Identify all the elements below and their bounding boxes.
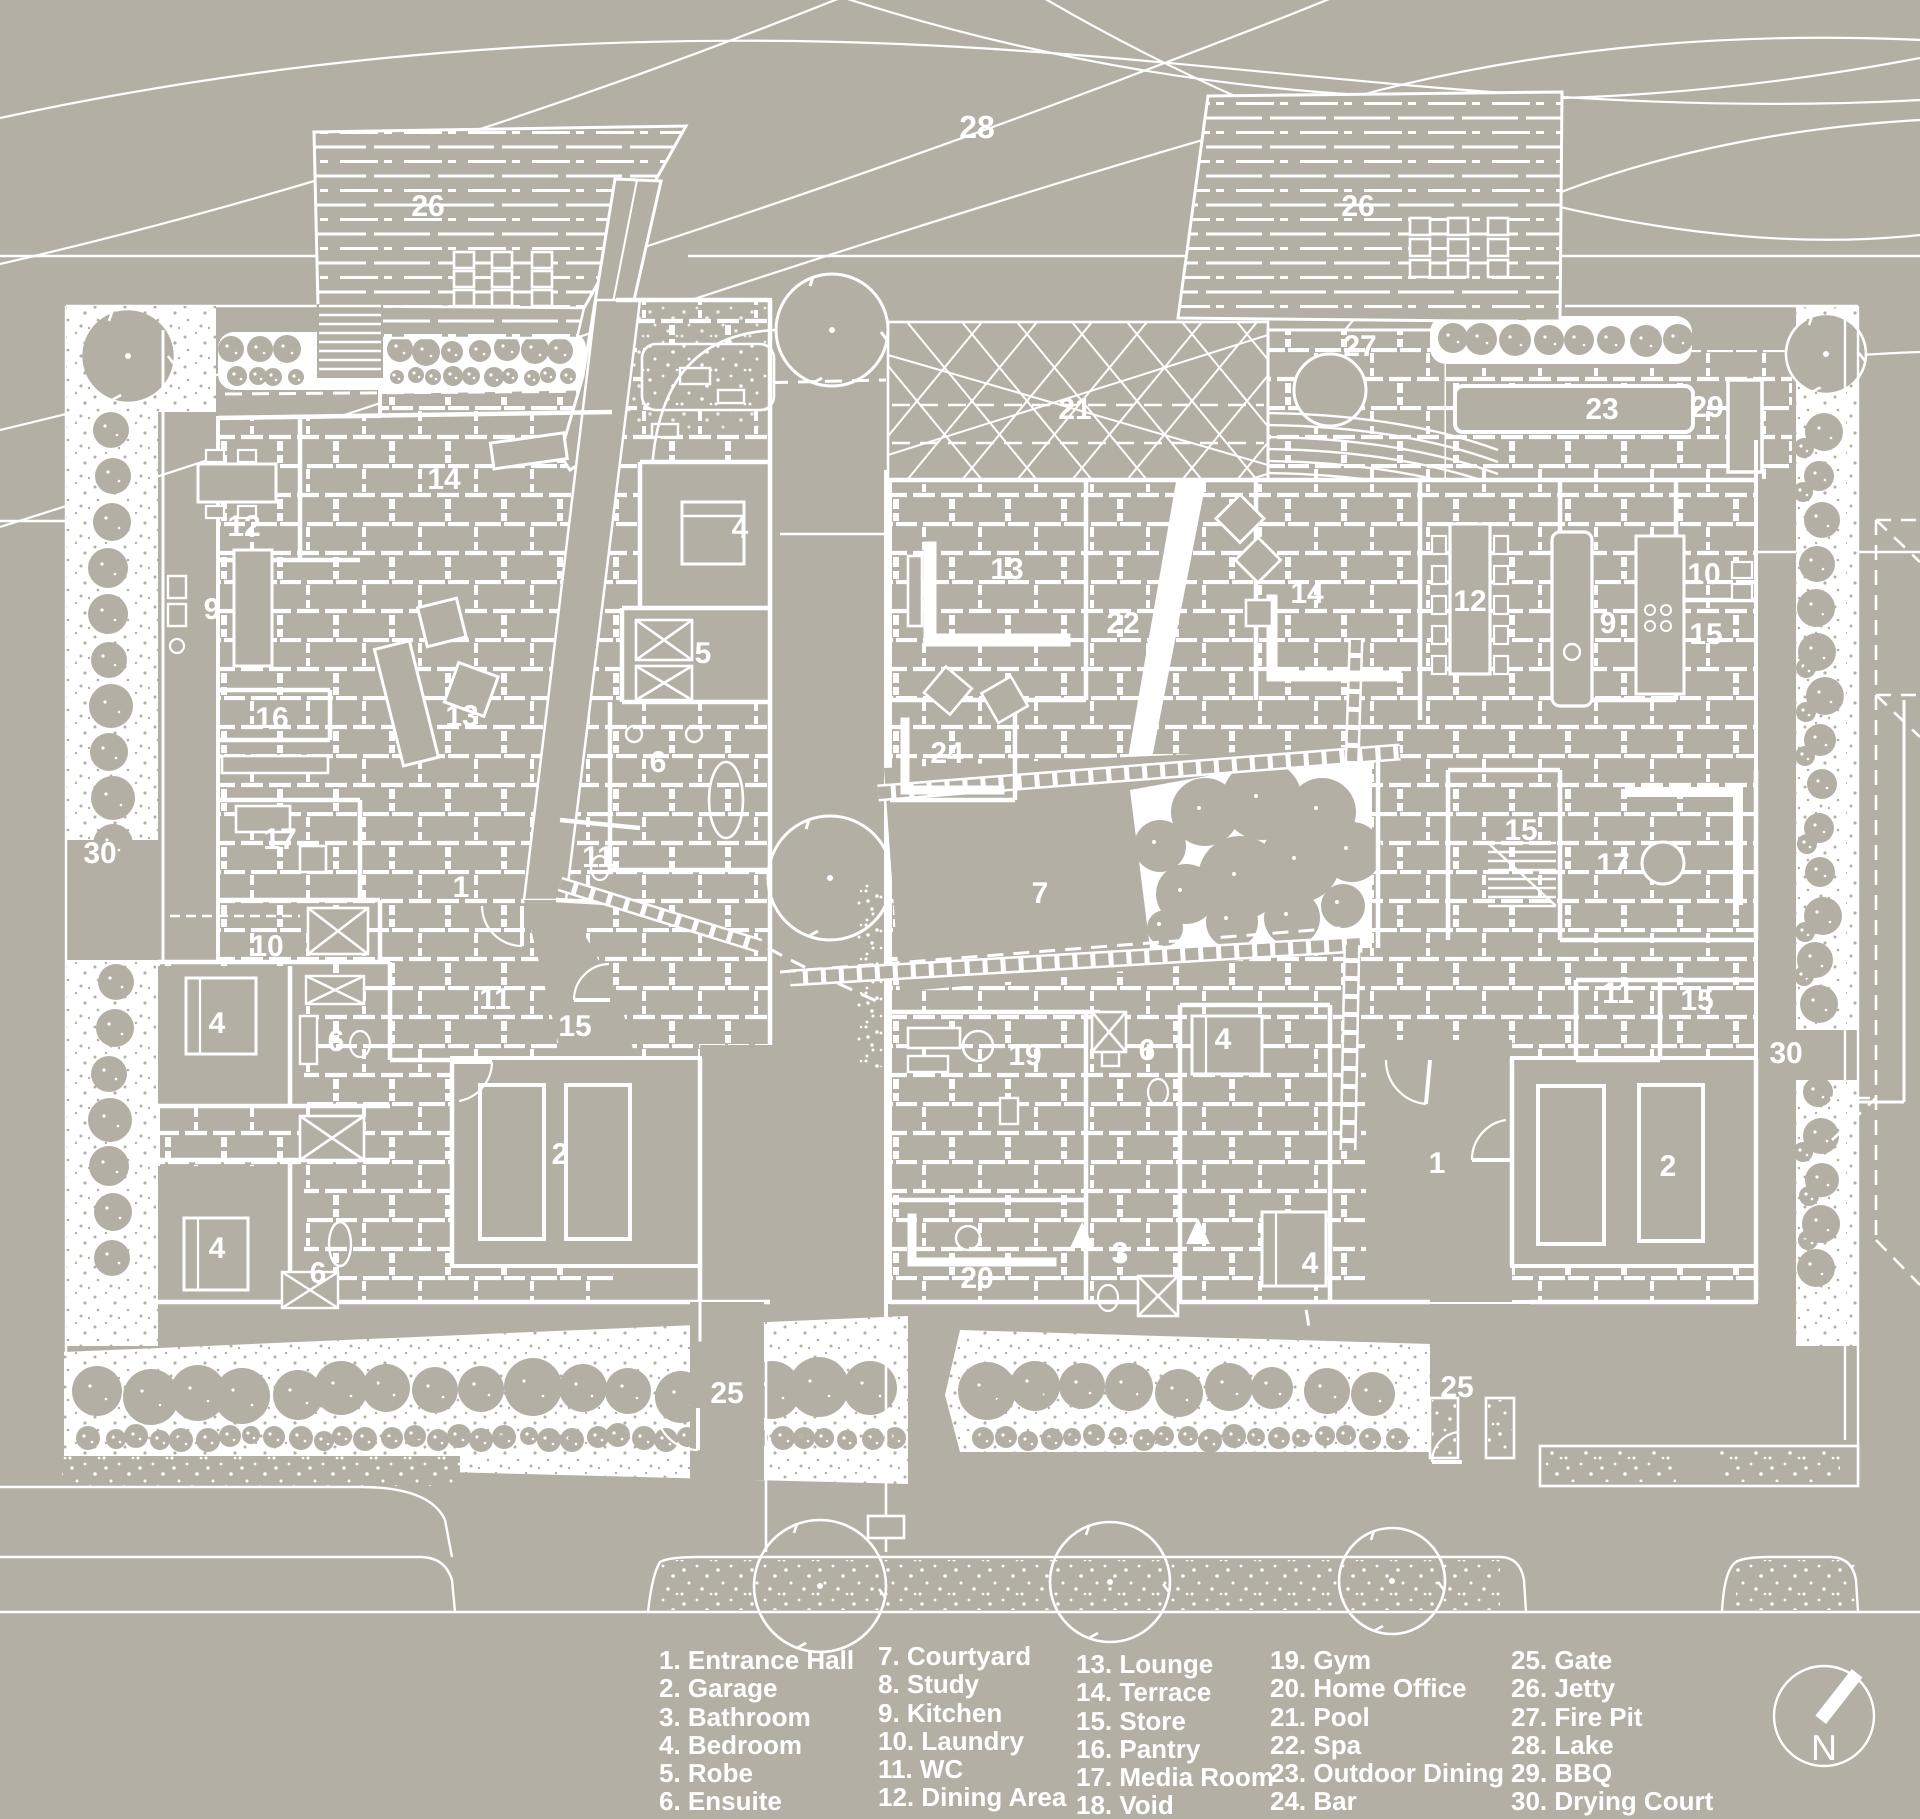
- svg-text:29. BBQ: 29. BBQ: [1511, 1758, 1612, 1788]
- svg-text:11: 11: [1602, 977, 1634, 1010]
- svg-text:26: 26: [1341, 190, 1374, 223]
- svg-text:6: 6: [310, 1257, 327, 1290]
- svg-text:17. Media Room: 17. Media Room: [1076, 1762, 1274, 1792]
- svg-text:23: 23: [1585, 393, 1618, 426]
- svg-text:15: 15: [1504, 814, 1537, 847]
- svg-text:27: 27: [1343, 330, 1376, 363]
- svg-text:27. Fire Pit: 27. Fire Pit: [1511, 1702, 1643, 1732]
- svg-text:4: 4: [1215, 1023, 1232, 1056]
- svg-text:25. Gate: 25. Gate: [1511, 1645, 1612, 1675]
- svg-text:3. Bathroom: 3. Bathroom: [659, 1702, 811, 1732]
- svg-text:12: 12: [227, 510, 260, 543]
- svg-text:7. Courtyard: 7. Courtyard: [878, 1641, 1031, 1671]
- svg-text:20. Home Office: 20. Home Office: [1270, 1673, 1467, 1703]
- svg-text:9: 9: [1600, 607, 1617, 640]
- svg-text:16. Pantry: 16. Pantry: [1076, 1734, 1201, 1764]
- svg-text:2: 2: [1660, 1150, 1677, 1183]
- svg-text:4: 4: [1302, 1247, 1319, 1280]
- svg-text:13: 13: [445, 700, 478, 733]
- svg-text:28: 28: [959, 109, 995, 145]
- svg-text:11: 11: [582, 841, 614, 874]
- svg-text:22. Spa: 22. Spa: [1270, 1730, 1362, 1760]
- svg-text:12: 12: [1453, 585, 1486, 618]
- svg-text:4: 4: [209, 1232, 226, 1265]
- svg-text:1: 1: [1429, 1147, 1446, 1180]
- svg-text:15. Store: 15. Store: [1076, 1706, 1186, 1736]
- svg-text:4: 4: [732, 512, 749, 545]
- svg-text:1. Entrance Hall: 1. Entrance Hall: [659, 1645, 854, 1675]
- svg-text:6: 6: [650, 746, 667, 779]
- svg-text:13. Lounge: 13. Lounge: [1076, 1649, 1213, 1679]
- svg-text:15: 15: [1680, 984, 1713, 1017]
- svg-text:28. Lake: 28. Lake: [1511, 1730, 1614, 1760]
- svg-text:26. Jetty: 26. Jetty: [1511, 1673, 1616, 1703]
- svg-text:14. Terrace: 14. Terrace: [1076, 1677, 1211, 1707]
- svg-text:23. Outdoor Dining: 23. Outdoor Dining: [1270, 1758, 1504, 1788]
- svg-text:11: 11: [479, 983, 511, 1016]
- svg-text:17: 17: [263, 823, 296, 856]
- svg-text:2: 2: [552, 1138, 569, 1171]
- svg-text:10: 10: [1687, 558, 1720, 591]
- svg-text:21: 21: [1058, 393, 1091, 426]
- svg-text:7: 7: [1032, 877, 1049, 910]
- svg-text:6: 6: [328, 1025, 345, 1058]
- svg-text:24: 24: [930, 737, 964, 770]
- svg-text:9. Kitchen: 9. Kitchen: [878, 1698, 1002, 1728]
- svg-text:17: 17: [1596, 848, 1629, 881]
- svg-text:10. Laundry: 10. Laundry: [878, 1726, 1024, 1756]
- svg-text:6. Ensuite: 6. Ensuite: [659, 1786, 782, 1816]
- svg-text:30: 30: [83, 837, 116, 870]
- svg-text:16: 16: [255, 702, 288, 735]
- svg-text:13: 13: [990, 553, 1023, 586]
- svg-text:21. Pool: 21. Pool: [1270, 1702, 1370, 1732]
- svg-text:1: 1: [453, 871, 470, 904]
- svg-text:22: 22: [1106, 607, 1139, 640]
- svg-text:24. Bar: 24. Bar: [1270, 1786, 1357, 1816]
- svg-text:30: 30: [1769, 1037, 1802, 1070]
- svg-text:15: 15: [558, 1010, 591, 1043]
- svg-text:11. WC: 11. WC: [878, 1754, 963, 1784]
- svg-text:8. Study: 8. Study: [878, 1669, 980, 1699]
- svg-text:5. Robe: 5. Robe: [659, 1758, 753, 1788]
- svg-text:10: 10: [250, 930, 283, 963]
- svg-text:4: 4: [209, 1007, 226, 1040]
- svg-text:4. Bedroom: 4. Bedroom: [659, 1730, 802, 1760]
- svg-text:9: 9: [204, 593, 221, 626]
- svg-text:6: 6: [1139, 1034, 1156, 1067]
- svg-text:18. Void: 18. Void: [1076, 1790, 1174, 1819]
- svg-text:19: 19: [1008, 1039, 1041, 1072]
- svg-text:29: 29: [1690, 391, 1723, 424]
- svg-text:19. Gym: 19. Gym: [1270, 1645, 1371, 1675]
- svg-text:30. Drying Court: 30. Drying Court: [1511, 1786, 1714, 1816]
- svg-text:25: 25: [710, 1377, 743, 1410]
- svg-text:5: 5: [695, 637, 712, 670]
- svg-text:14: 14: [1290, 577, 1324, 610]
- svg-text:14: 14: [427, 463, 461, 496]
- svg-text:20: 20: [960, 1262, 993, 1295]
- svg-text:12. Dining Area: 12. Dining Area: [878, 1782, 1067, 1812]
- svg-text:2. Garage: 2. Garage: [659, 1673, 778, 1703]
- svg-text:25: 25: [1440, 1371, 1473, 1404]
- svg-text:N: N: [1811, 1727, 1837, 1768]
- svg-text:15: 15: [1689, 618, 1722, 651]
- svg-text:26: 26: [411, 190, 444, 223]
- svg-text:3: 3: [1112, 1237, 1129, 1270]
